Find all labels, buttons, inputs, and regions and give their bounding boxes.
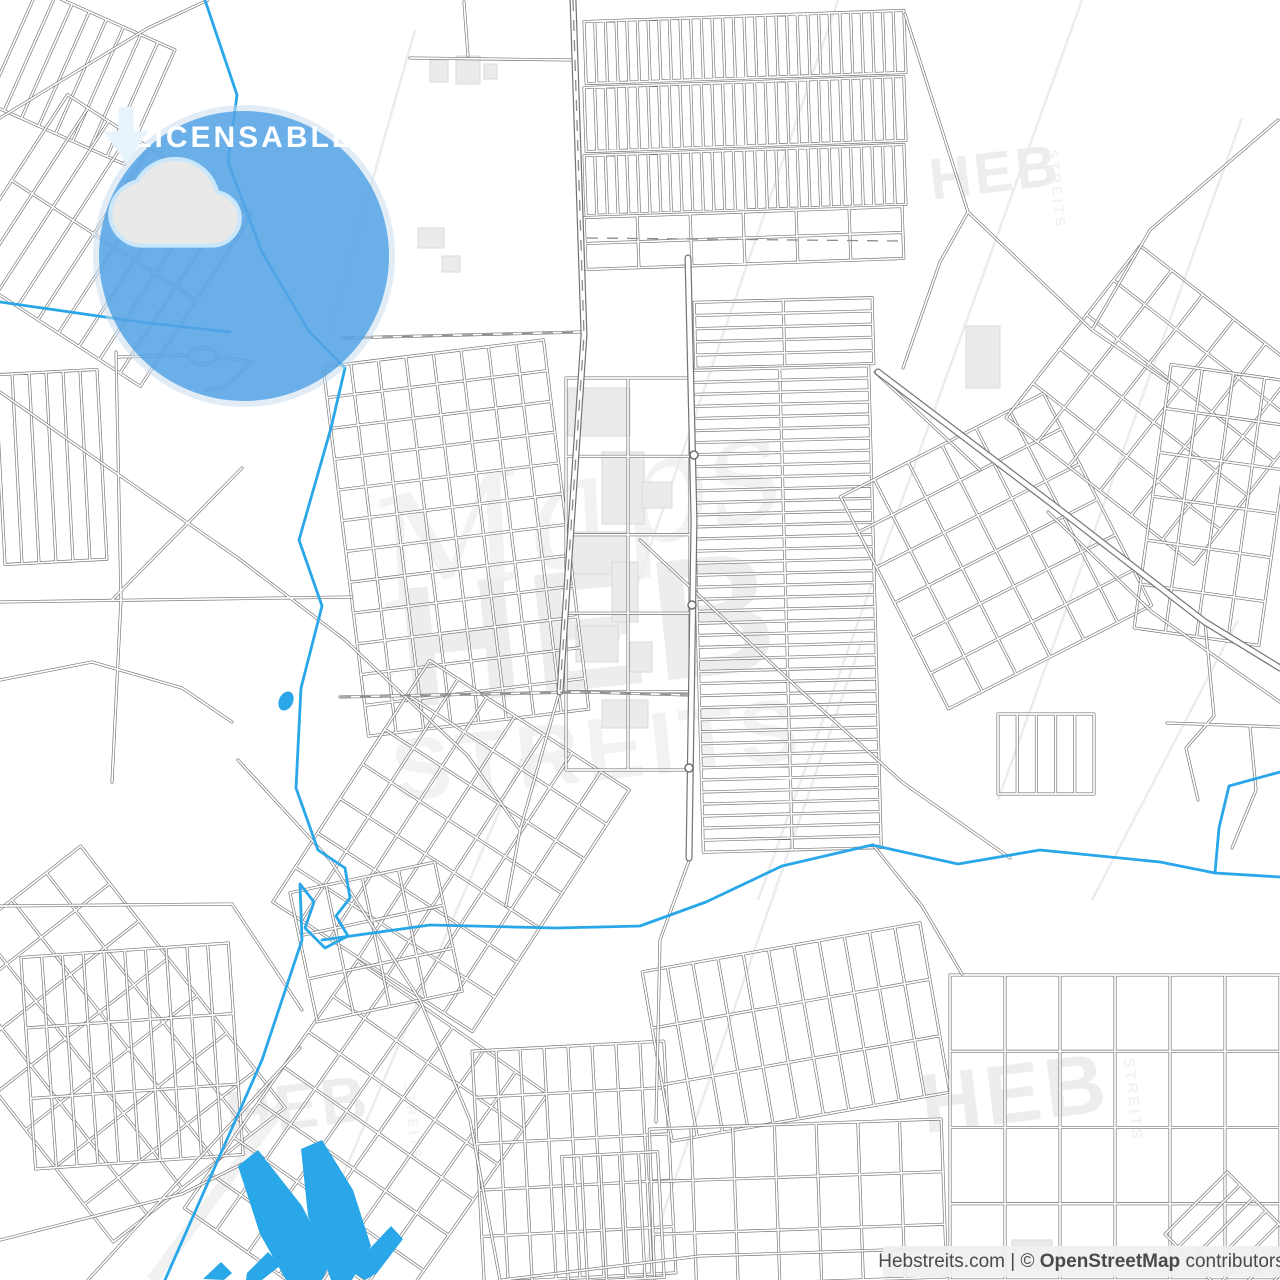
- download-arrow-icon: [99, 107, 153, 165]
- map-preview: Maps HEB STREITS HEB STREITS HEB STREITS…: [0, 0, 1280, 1280]
- attribution-osm: OpenStreetMap: [1040, 1251, 1180, 1273]
- licensable-badge: LICENSABLE: [99, 111, 389, 401]
- attribution-bar: Hebstreits.com | © OpenStreetMap contrib…: [883, 1246, 1280, 1277]
- attribution-suffix: contributors: [1185, 1251, 1280, 1273]
- attribution-separator: |: [1005, 1251, 1021, 1273]
- attribution-copyright: ©: [1020, 1251, 1039, 1273]
- attribution-site: Hebstreits.com: [878, 1251, 1005, 1273]
